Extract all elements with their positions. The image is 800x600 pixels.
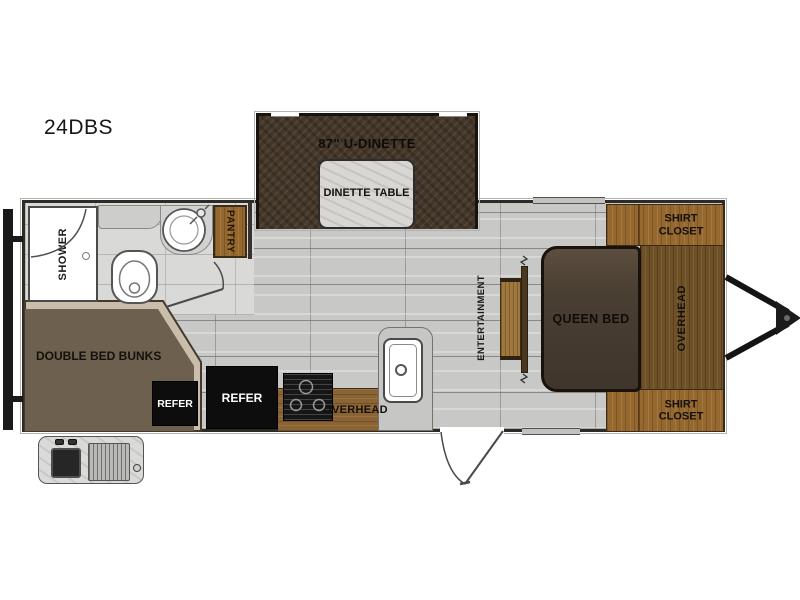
- entertainment-label: ENTERTAINMENT: [476, 275, 487, 361]
- rear-bumper: [3, 209, 13, 430]
- double-bed-bunks-label: DOUBLE BED BUNKS: [36, 349, 166, 363]
- burner-knob-icon: [55, 439, 64, 445]
- outdoor-kitchen-tray: [38, 436, 144, 484]
- bathroom-wall: [248, 203, 252, 259]
- shower-label: SHOWER: [57, 228, 69, 281]
- window-top: [533, 197, 605, 204]
- refrigerator-rear: REFER: [152, 381, 198, 426]
- outdoor-burner-icon: [51, 448, 81, 478]
- shirt-closet-top-label: SHIRT CLOSET: [641, 212, 721, 237]
- burner-knob-icon: [68, 439, 77, 445]
- dinette-table-label: DINETTE TABLE: [324, 187, 410, 200]
- shirt-closet-top: SHIRT CLOSET: [606, 204, 724, 246]
- dinette-table: DINETTE TABLE: [318, 159, 415, 229]
- slide-window: [439, 113, 467, 117]
- overhead-cabinet-front: OVERHEAD: [640, 245, 724, 391]
- hitch-a-frame: [726, 277, 800, 358]
- refer-label: REFER: [222, 391, 263, 405]
- model-title: 24DBS: [44, 116, 113, 140]
- shower-drain-icon: [82, 252, 90, 260]
- slide-out-u-dinette: 87" U-DINETTE DINETTE TABLE: [256, 113, 478, 229]
- floorplan-canvas: 24DBS SHOWER PANTRY DOUBLE BED BUNKS REF…: [0, 0, 800, 600]
- overhead-front-label: OVERHEAD: [676, 285, 688, 351]
- queen-bed-label: QUEEN BED: [552, 312, 629, 326]
- closet-divider: [638, 390, 640, 431]
- bumper-bracket: [13, 236, 23, 242]
- pantry-label: PANTRY: [225, 210, 236, 253]
- kitchen-overhead-label: OVERHEAD: [278, 404, 433, 416]
- shirt-closet-bottom: SHIRT CLOSET: [606, 389, 724, 432]
- queen-bed: QUEEN BED: [541, 246, 641, 392]
- kitchen-faucet-icon: [395, 364, 407, 376]
- closet-divider: [638, 205, 640, 245]
- refer-label: REFER: [157, 398, 193, 410]
- bathroom-sink-counter: [160, 205, 213, 255]
- outdoor-griddle-icon: [88, 443, 130, 481]
- shower-stall: SHOWER: [28, 206, 98, 302]
- u-dinette-label: 87" U-DINETTE: [259, 136, 475, 151]
- window-bottom: [522, 428, 580, 435]
- bumper-bracket: [13, 396, 23, 402]
- entry-door-opening: [440, 427, 504, 437]
- entertainment-divider-wall: [521, 266, 528, 373]
- pantry-cabinet: PANTRY: [213, 205, 247, 258]
- entertainment-label-wrap: ENTERTAINMENT: [468, 270, 494, 366]
- bathroom-vanity-counter: [98, 205, 162, 229]
- entertainment-center: [500, 278, 521, 360]
- refrigerator-kitchen: REFER: [206, 366, 278, 429]
- griddle-knob-icon: [133, 464, 141, 472]
- slide-window: [271, 113, 299, 117]
- shirt-closet-bottom-label: SHIRT CLOSET: [641, 398, 721, 423]
- entry-door-arc: [441, 431, 503, 484]
